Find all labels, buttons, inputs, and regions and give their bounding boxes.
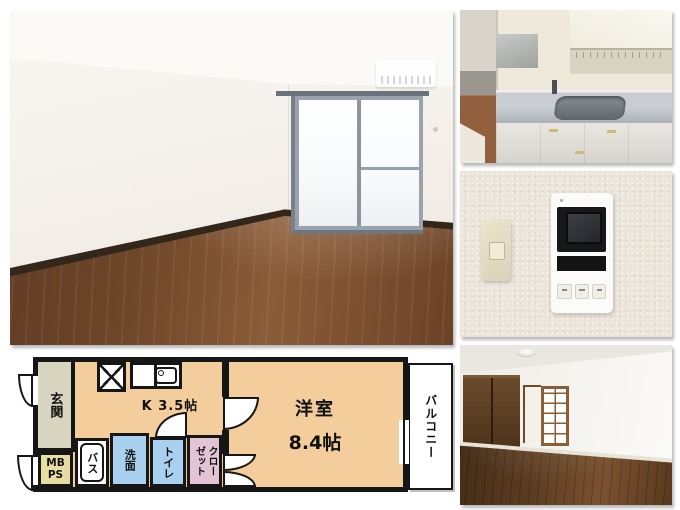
door-mid-rail <box>361 167 419 170</box>
entrance-area: 玄関 <box>38 362 75 452</box>
toilet-area: トイレ <box>150 437 186 487</box>
control-strip <box>557 256 606 272</box>
wall-corner-line <box>288 84 289 218</box>
entrance-label: 玄関 <box>48 392 62 418</box>
intercom-buttons <box>557 284 606 298</box>
toilet-label: トイレ <box>162 446 174 479</box>
light-switch <box>481 219 511 280</box>
balcony-label: バルコニー <box>424 394 437 459</box>
mbps-door-opening <box>33 457 38 485</box>
mbps-door-arc <box>17 455 33 491</box>
closet-doors <box>463 375 520 450</box>
room-name: 洋室 <box>229 395 401 421</box>
sink-symbol <box>155 367 177 384</box>
glass-panel-door <box>541 386 569 446</box>
video-intercom-unit <box>551 193 612 313</box>
refrigerator-space-symbol <box>97 362 126 392</box>
bath-area: バス <box>75 438 109 487</box>
speaker-dot <box>560 199 563 202</box>
intercom-button <box>575 284 589 298</box>
cabinet-handle <box>549 129 558 132</box>
entry-door-opening <box>33 376 38 405</box>
switch-button <box>489 242 505 260</box>
balcony-area: バルコニー <box>408 363 453 490</box>
mb-label: MB <box>46 458 64 469</box>
door-center-frame <box>357 100 361 226</box>
meter-box-area: MB PS <box>38 452 73 487</box>
entrance-door-arc <box>18 374 33 407</box>
screen-bezel <box>557 207 606 252</box>
ps-label: PS <box>48 470 63 481</box>
bathtub-outline: バス <box>80 443 104 482</box>
kitchen-photo <box>460 10 672 163</box>
washroom-area: 洗面 <box>110 433 149 487</box>
cabinet-handle <box>607 130 616 133</box>
partition-wall <box>222 430 229 454</box>
upper-cabinet <box>570 10 672 74</box>
living-room-photo <box>10 10 453 345</box>
intercom-button <box>557 284 571 298</box>
cabinet-handle <box>575 151 584 154</box>
washroom-label: 洗面 <box>124 449 136 471</box>
wall-sensor <box>433 127 438 132</box>
intercom-screen <box>566 212 601 244</box>
lower-cabinet <box>496 123 672 163</box>
closet-area: クロー ゼット <box>187 435 222 487</box>
utensil-hooks <box>576 52 666 57</box>
property-collage: バルコニー 玄関 MB PS バス 洗面 トイレ クロー ゼット <box>0 0 680 510</box>
faucet <box>552 80 557 94</box>
closet-label-col2: ゼット <box>193 446 204 476</box>
bedroom-photo <box>460 345 672 505</box>
kitchen-sink <box>554 96 627 120</box>
intercom-button <box>592 284 606 298</box>
open-doorway <box>523 385 542 443</box>
bath-label: バス <box>86 452 98 474</box>
kitchen-size-label: K 3.5帖 <box>120 395 220 414</box>
open-shelf <box>570 48 672 74</box>
kitchen-counter-symbol <box>130 362 182 389</box>
closet-label-col1: クロー <box>206 446 217 476</box>
western-room-label: 洋室 8.4帖 <box>229 395 401 455</box>
partition-wall <box>222 357 229 397</box>
sliding-glass-door <box>291 96 423 234</box>
air-conditioner <box>376 60 436 87</box>
floor-plan: バルコニー 玄関 MB PS バス 洗面 トイレ クロー ゼット <box>15 350 465 508</box>
room-size: 8.4帖 <box>229 428 401 455</box>
backsplash-panel <box>496 34 538 68</box>
intercom-photo <box>460 171 672 337</box>
